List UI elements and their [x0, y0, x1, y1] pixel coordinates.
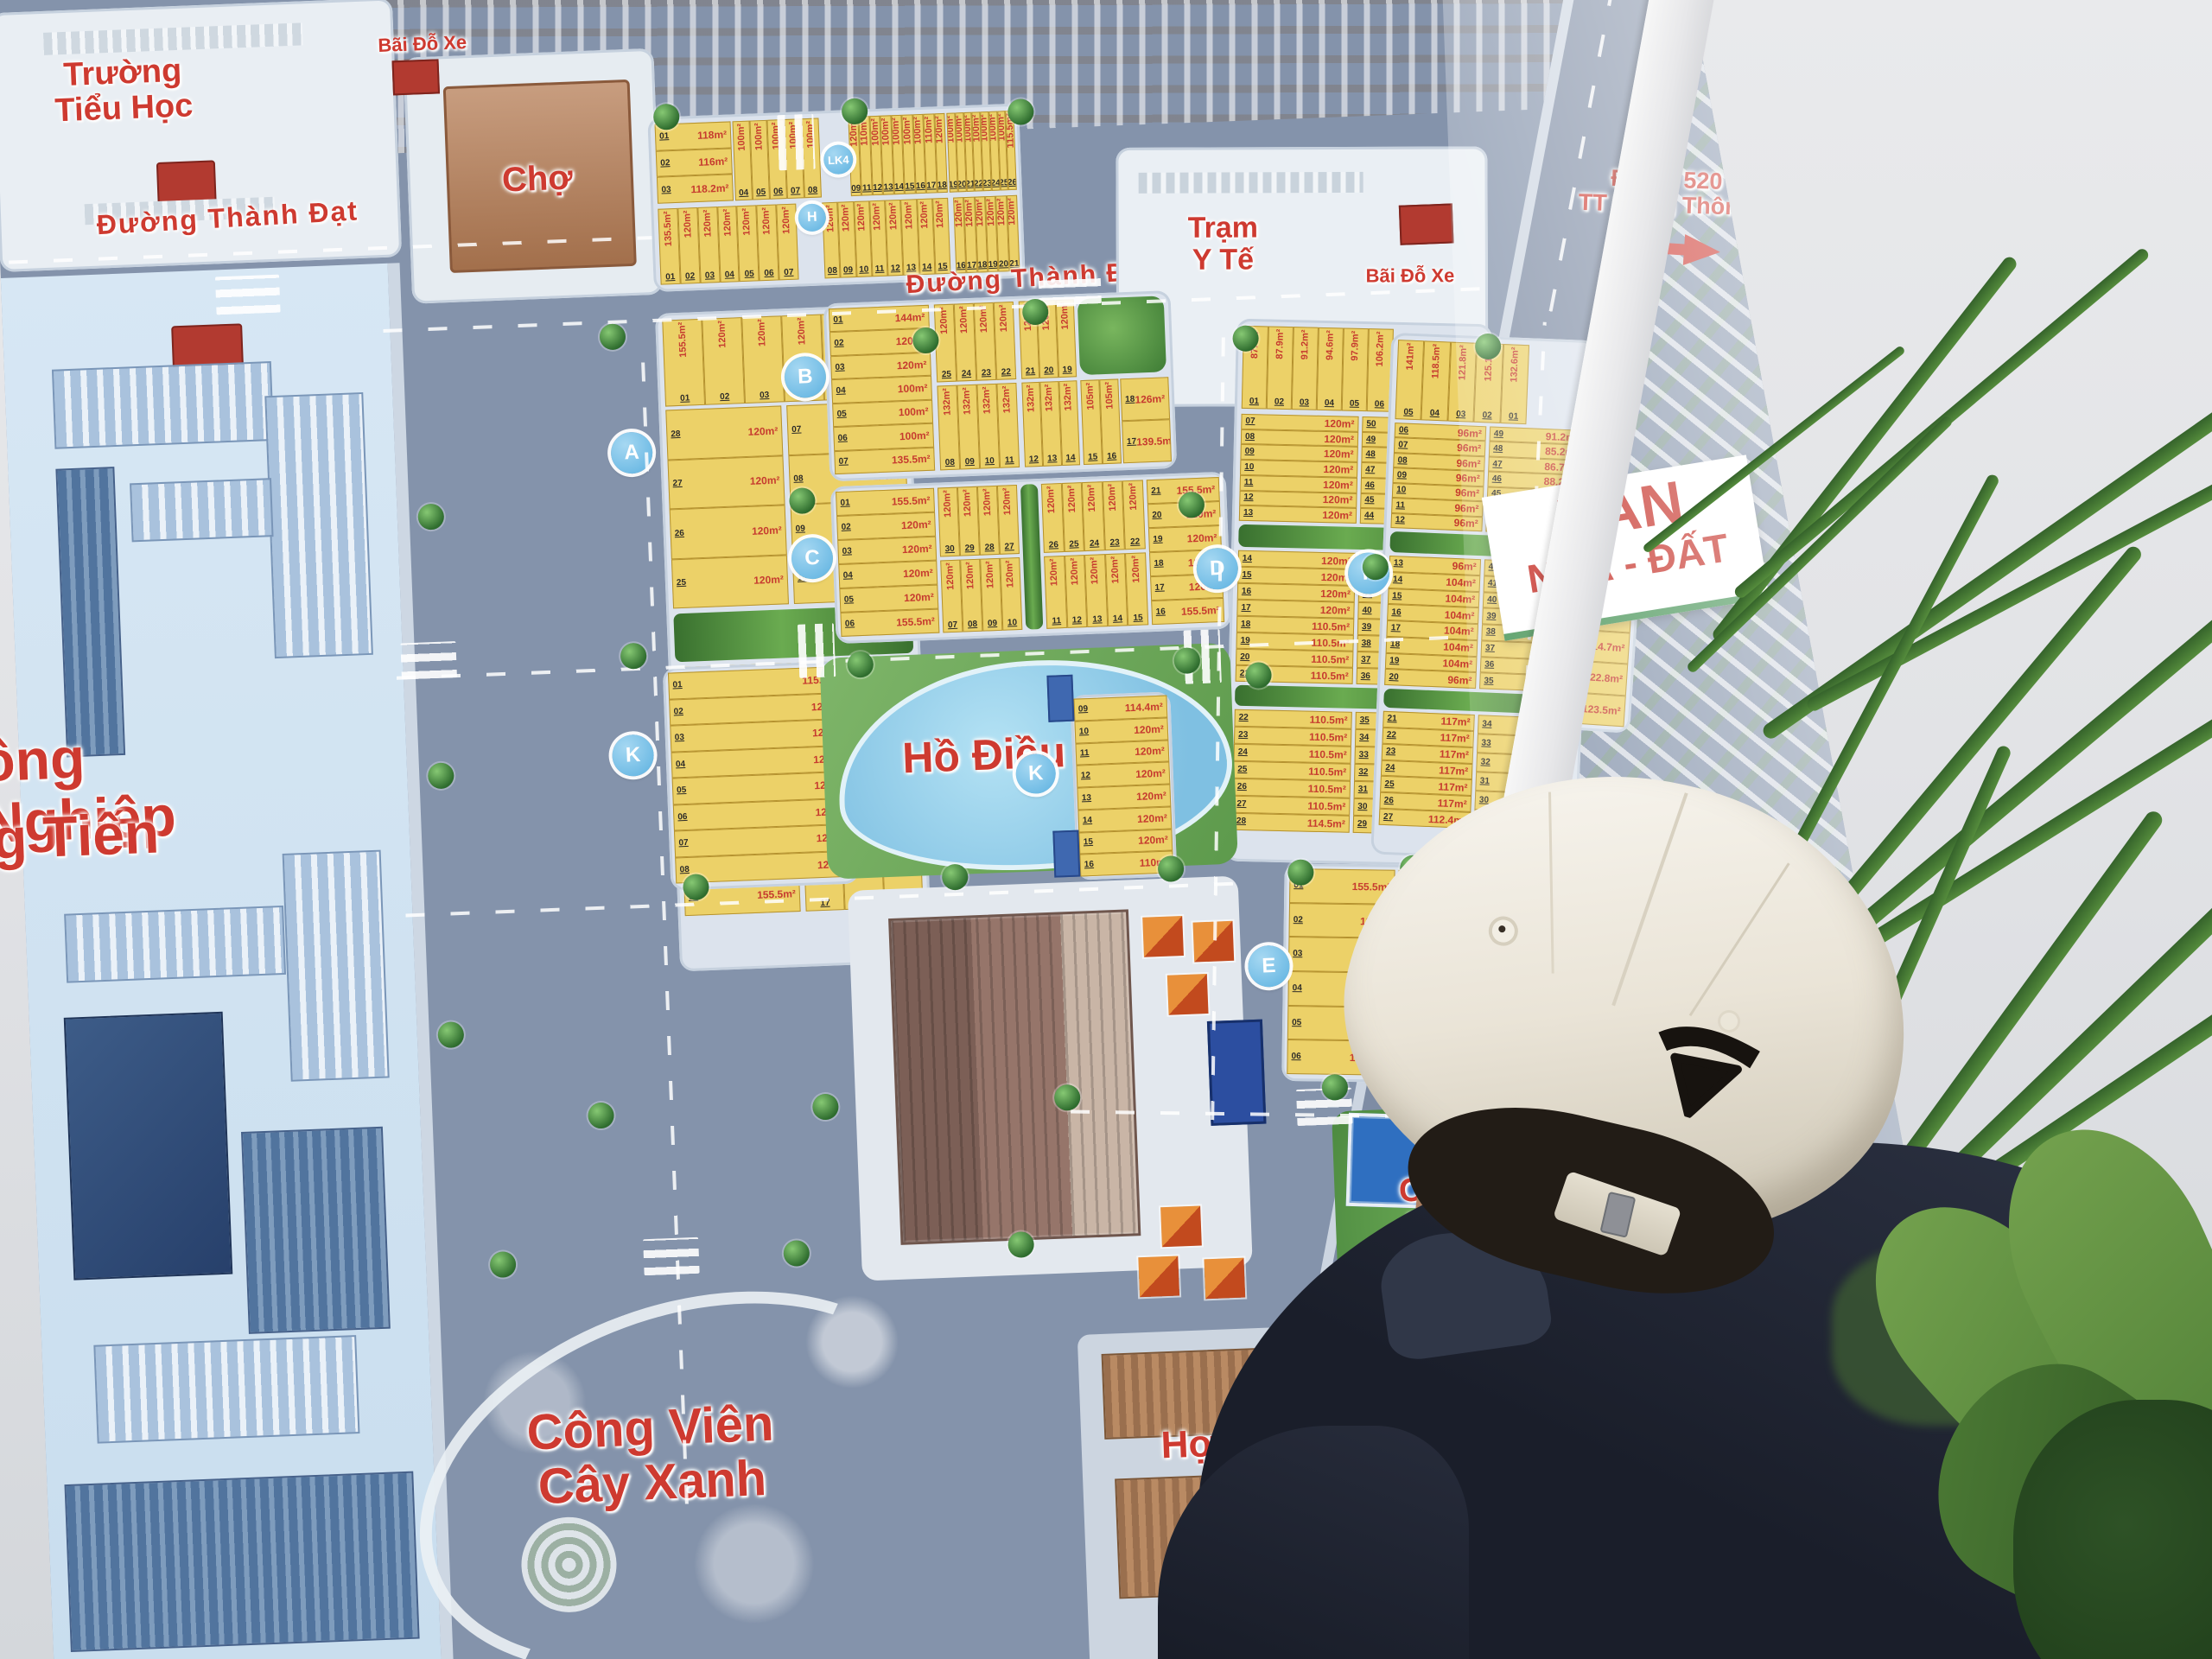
lot-17: 139.5m²17 [1122, 419, 1172, 463]
f-top-lots: 141m²05118.5m²04121.8m²03125.1m²02132.6m… [1395, 340, 1529, 424]
lot-01: 155.5m²01 [836, 488, 935, 516]
lot-28: 114.5m²28 [1232, 813, 1350, 833]
b-corner-lots: 126m²18139.5m²17 [1120, 377, 1172, 463]
c-mid-bot-lots: 120m²07120m²08120m²09120m²10 [940, 557, 1022, 632]
clinic-label: Trạm Y Tế [1136, 212, 1309, 276]
lot-04: 120m²04 [717, 206, 740, 283]
lot-01: 132.6m²01 [1500, 344, 1529, 424]
market-label: Chợ [480, 159, 594, 200]
lot-04: 120m²04 [838, 561, 938, 588]
c-left-lots: 155.5m²01120m²02120m²03120m²04120m²05155… [836, 488, 939, 637]
b-bot1-lots: 132m²08132m²09132m²10132m²11 [937, 383, 1020, 470]
lot-16: 105m²16 [1099, 378, 1122, 464]
block-b: 144m²01120m²02120m²03100m²04100m²05100m²… [823, 290, 1178, 481]
lot-20: 96m²20 [1384, 669, 1477, 689]
lot-28: 120m²28 [977, 486, 1000, 556]
umbrella [1167, 974, 1209, 1015]
lot-12: 120m²12 [1065, 555, 1088, 628]
lot-30: 120m²30 [938, 487, 960, 557]
umbrella [1204, 1258, 1245, 1300]
parking1-building [392, 59, 440, 95]
lot-11: 120m²11 [1044, 556, 1067, 629]
lot-18: 120m²18 [934, 113, 948, 193]
lot-24: 120m²24 [1082, 481, 1105, 551]
crosswalk [777, 114, 815, 171]
parking2-label: Bãi Đỗ Xe [1337, 265, 1484, 286]
lot-02: 120m²02 [836, 512, 936, 540]
lot-23: 120m²23 [974, 302, 996, 381]
c-green-strip [1020, 484, 1043, 630]
b-bot3-lots: 105m²15105m²16 [1080, 378, 1122, 465]
lot-10: 120m²10 [1000, 557, 1022, 631]
d-s1-left-lots: 120m²07120m²08120m²09120m²10120m²11120m²… [1239, 414, 1359, 524]
civic-building-roof [888, 909, 1141, 1244]
lot-02: 87.9m²02 [1267, 327, 1294, 410]
block-c: 155.5m²01120m²02120m²03120m²04120m²05155… [830, 472, 1232, 644]
lot-01: 135.5m²01 [658, 208, 680, 285]
lot-01: 155.5m²01 [662, 319, 705, 407]
h-top-right1-lots: 120m²09110m²11100m²12100m²13100m²14100m²… [848, 113, 947, 196]
h-bottom-mid-lots: 120m²08120m²09120m²10120m²11120m²12120m²… [822, 198, 950, 279]
lot-02: 116m²02 [656, 148, 733, 177]
b-top1-lots: 120m²25120m²24120m²23120m²22 [934, 302, 1016, 382]
h-top-right2-lots: 100m²19100m²20100m²21100m²22100m²23100m²… [946, 111, 1016, 193]
green-park-label: Công ViênCây Xanh [459, 1395, 842, 1517]
crosswalk [215, 275, 281, 315]
lot-26: 120m²26 [1041, 483, 1065, 553]
c-right-bot-lots: 120m²11120m²12120m²13120m²14120m²15 [1044, 552, 1148, 628]
civic-stage [1207, 1020, 1267, 1126]
lot-05: 97.9m²05 [1342, 327, 1369, 411]
parking2-building [1399, 203, 1454, 245]
lot-26: 120m²26 [670, 505, 787, 559]
factory-shed-dark [55, 467, 125, 757]
lot-25: 120m²25 [1061, 482, 1084, 552]
lot-05: 141m²05 [1395, 340, 1424, 420]
lot-14: 132m²14 [1058, 380, 1080, 466]
tree [437, 1021, 464, 1048]
lot-04: 118.5m²04 [1421, 340, 1451, 421]
factory-shed [64, 906, 286, 983]
lot-07: 135.5m²07 [834, 447, 935, 474]
school-label: TrườngTiểu Học [5, 51, 241, 130]
lot-29: 120m²29 [957, 486, 980, 556]
lot-28: 120m²28 [665, 405, 783, 460]
lake-pier [1052, 830, 1080, 878]
tree [812, 1093, 839, 1120]
lot-22: 120m²22 [994, 302, 1016, 380]
lot-27: 120m²27 [997, 485, 1020, 555]
block-label-k1: K [612, 734, 655, 777]
factory-shed [264, 392, 373, 658]
tree [599, 323, 626, 350]
factory-shed [130, 478, 273, 542]
f-s2-left-lots: 96m²13104m²14104m²15104m²16104m²17104m²1… [1384, 556, 1481, 689]
lot-07: 120m²07 [776, 204, 798, 281]
crosswalk [798, 623, 836, 678]
h-bottom-left-lots: 135.5m²01120m²02120m²03120m²04120m²05120… [658, 204, 798, 285]
lot-06: 120m²06 [757, 204, 779, 281]
f-s1-left-lots: 96m²0696m²0796m²0896m²0996m²1096m²1196m²… [1390, 423, 1486, 531]
lot-09: 120m²09 [980, 558, 1002, 632]
crosswalk [643, 1237, 700, 1275]
lake-pier [1046, 675, 1074, 722]
tree [588, 1102, 614, 1128]
cap-eyelet-hole [1498, 925, 1507, 933]
umbrella [1142, 916, 1184, 957]
lot-05: 120m²05 [737, 205, 760, 282]
factory-shed [93, 1335, 359, 1444]
lot-14: 120m²14 [1105, 553, 1128, 626]
lot-02: 120m²02 [702, 317, 745, 405]
lot-13: 120m²13 [1239, 505, 1357, 524]
lot-22: 120m²22 [1122, 480, 1146, 550]
c-right-top-lots: 120m²26120m²25120m²24120m²23120m²22 [1041, 480, 1146, 552]
d-s3-left-lots: 110.5m²22110.5m²23110.5m²24110.5m²25110.… [1232, 709, 1352, 833]
umbrella [1160, 1205, 1202, 1247]
lot-11: 132m²11 [996, 383, 1020, 468]
umbrella [1138, 1256, 1179, 1298]
d-top-lots: 87.6m²0187.9m²0291.2m²0394.6m²0497.9m²05… [1242, 326, 1394, 412]
lot-07: 120m²07 [940, 560, 963, 633]
block-h: 118m²01116m²02118.2m²03 100m²04100m²0510… [647, 104, 1025, 292]
industrial-label2: ng Tiến [0, 801, 200, 872]
factory-shed [283, 850, 390, 1082]
h-bottom-right-lots: 120m²16120m²17120m²18120m²19120m²20120m²… [953, 195, 1020, 274]
lot-25: 120m²25 [671, 555, 789, 609]
lot-03: 120m²03 [697, 207, 720, 283]
lot-02: 120m²02 [677, 207, 700, 284]
lot-19: 120m²19 [1055, 299, 1077, 378]
lot-27: 120m²27 [667, 455, 785, 510]
k-right-lots: 114.4m²09120m²10120m²11120m²12120m²13120… [1073, 696, 1173, 877]
lot-24: 120m²24 [954, 303, 976, 382]
b-corner-park [1077, 296, 1166, 375]
block-k-right: 114.4m²09120m²10120m²11120m²12120m²13120… [1070, 691, 1177, 880]
lot-03: 120m²03 [741, 315, 785, 404]
lot-04: 94.6m²04 [1317, 327, 1344, 411]
lot-05: 120m²05 [839, 585, 938, 613]
lot-21: 120m²21 [1007, 195, 1020, 271]
h-top-left-lots: 118m²01116m²02118.2m²03 [655, 121, 734, 203]
lot-23: 120m²23 [1103, 480, 1126, 550]
lot-03: 118.2m²03 [657, 175, 734, 204]
lot-06: 155.5m²06 [840, 609, 939, 637]
photo-of-masterplan-billboard: TrườngTiểu Học Chợ Bãi Đỗ Xe Đường Thành… [0, 0, 2212, 1659]
lot-03: 121.8m²03 [1447, 342, 1477, 423]
crosswalk [1038, 270, 1101, 306]
factory-shed [52, 361, 274, 449]
lot-15: 120m²15 [932, 198, 951, 275]
lot-03: 91.2m²03 [1292, 327, 1319, 410]
c-mid-top-lots: 120m²30120m²29120m²28120m²27 [938, 485, 1020, 556]
tree [620, 643, 647, 670]
lot-18: 126m²18 [1120, 377, 1170, 421]
roof-texture [891, 912, 1138, 1243]
lot-03: 120m²03 [837, 537, 937, 564]
lot-08: 120m²08 [960, 559, 982, 632]
clinic-parking-row [1139, 172, 1363, 194]
tree [428, 762, 454, 789]
lot-16: 155.5m²16 [1151, 598, 1224, 625]
b-bot2-lots: 132m²12132m²13132m²14 [1021, 380, 1080, 467]
lot-15: 120m²15 [1125, 552, 1148, 626]
a-upper-left-lots: 120m²28120m²27120m²26120m²25 [665, 405, 789, 608]
lot-12: 96m²12 [1390, 513, 1483, 532]
crosswalk [400, 641, 457, 679]
lot-13: 120m²13 [1084, 554, 1108, 627]
industrial-pond [64, 1012, 233, 1281]
tree [417, 504, 444, 531]
